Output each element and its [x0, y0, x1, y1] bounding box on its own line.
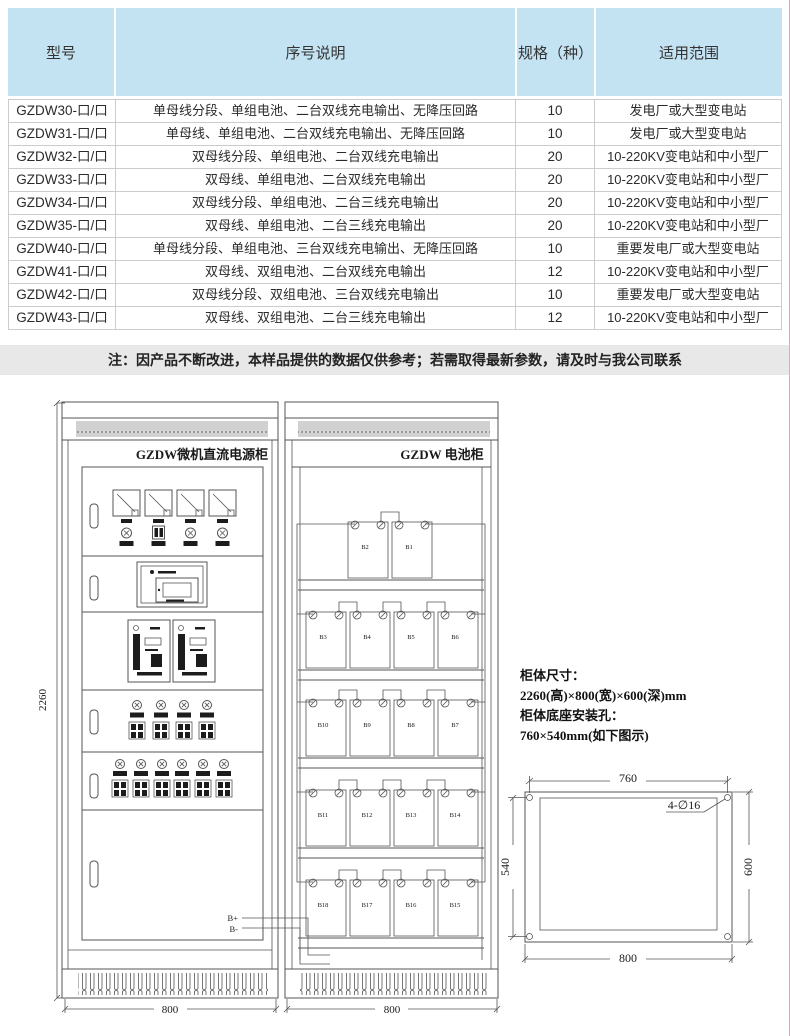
battery: B8	[394, 699, 434, 756]
charger-module	[173, 620, 215, 682]
vent-grille-top	[298, 421, 490, 437]
battery-cabinet-title: GZDW 电池柜	[400, 447, 483, 462]
hole-callout-label: 4-∅16	[668, 798, 700, 812]
battery-label: B10	[318, 722, 329, 729]
battery-bridge	[339, 690, 357, 700]
battery-label: B14	[450, 812, 462, 819]
door-handle	[90, 861, 98, 887]
indicator-light-icon	[122, 528, 132, 538]
battery-cabinet: GZDW 电池柜 B2B1B3B4B5B6B10B9B8B7B11B12B13B…	[285, 402, 498, 998]
table-cell: 20	[516, 146, 594, 168]
battery: B18	[306, 879, 346, 936]
door-handle	[90, 576, 98, 600]
mounting-hole	[527, 934, 533, 940]
battery-bridge	[427, 780, 445, 790]
battery-label: B17	[362, 902, 374, 909]
table-cell: 发电厂或大型变电站	[595, 123, 781, 145]
battery-label: B6	[451, 634, 459, 641]
power-cabinet-title: GZDW微机直流电源柜	[136, 447, 268, 462]
table-cell: 10-220KV变电站和中小型厂	[595, 215, 781, 237]
battery: B5	[394, 611, 434, 668]
battery-label: B11	[318, 812, 329, 819]
breaker-column	[195, 760, 211, 798]
header-spec-count: 规格（种）	[517, 8, 594, 96]
vent-grille-top	[76, 421, 268, 437]
battery: B6	[438, 611, 478, 668]
table-cell: 双母线、单组电池、二台双线充电输出	[116, 169, 515, 191]
wire-label-negative: B-	[230, 924, 239, 934]
battery-label: B13	[406, 812, 417, 819]
battery: B2	[348, 521, 388, 578]
vent-grille-bottom	[78, 973, 268, 995]
indicator-light-icon	[218, 528, 228, 538]
battery-bridge	[339, 780, 357, 790]
battery: B7	[438, 699, 478, 756]
table-cell: 10	[516, 123, 594, 145]
table-cell: 10	[516, 284, 594, 306]
breaker-column	[176, 701, 192, 740]
table-cell: 重要发电厂或大型变电站	[595, 284, 781, 306]
dimension-height: 2260	[37, 400, 65, 1001]
table-cell: GZDW35-口/口	[9, 215, 115, 237]
catalog-page: 型号 序号说明 规格（种） 适用范围 GZDW30-口/口单母线分段、单组电池、…	[0, 0, 790, 1036]
breaker-column	[174, 760, 190, 798]
battery-bridge	[381, 512, 399, 522]
breaker-column	[199, 701, 215, 740]
battery-label: B7	[451, 722, 459, 729]
note-bar: 注：因产品不断改进，本样品提供的数据仅供参考；若需取得最新参数，请及时与我公司联…	[0, 345, 790, 375]
battery-width-label: 800	[384, 1004, 401, 1016]
battery-bridge	[383, 602, 401, 612]
battery-label: B1	[405, 544, 413, 551]
table-cell: 10	[516, 238, 594, 260]
table-cell: 双母线分段、单组电池、二台三线充电输出	[116, 192, 515, 214]
battery-label: B18	[318, 902, 329, 909]
analog-meter	[177, 490, 204, 523]
header-application: 适用范围	[596, 8, 782, 96]
breaker-rows	[112, 701, 232, 798]
table-cell: 双母线分段、单组电池、二台双线充电输出	[116, 146, 515, 168]
analog-meters	[113, 490, 236, 546]
mounting-hole	[725, 795, 731, 801]
vent-grille-bottom	[300, 973, 490, 995]
table-cell: 10-220KV变电站和中小型厂	[595, 146, 781, 168]
table-cell: 双母线、双组电池、二台三线充电输出	[116, 307, 515, 329]
table-cell: 20	[516, 192, 594, 214]
battery-label: B3	[319, 634, 327, 641]
charger-modules	[128, 620, 215, 682]
breaker-column	[129, 701, 145, 740]
wire-label-positive: B+	[228, 913, 239, 923]
battery: B14	[438, 789, 478, 846]
table-cell: GZDW30-口/口	[9, 100, 115, 122]
battery-bridge	[427, 602, 445, 612]
table-cell: 10-220KV变电站和中小型厂	[595, 307, 781, 329]
base-left-dim: 540	[498, 858, 512, 876]
table-cell: 单母线、单组电池、二台双线充电输出、无降压回路	[116, 123, 515, 145]
battery-bridge	[339, 870, 357, 880]
battery-label: B12	[362, 812, 373, 819]
mounting-hole	[725, 934, 731, 940]
spec-table-header: 型号 序号说明 规格（种） 适用范围	[8, 8, 782, 96]
analog-meter	[113, 490, 140, 523]
battery: B4	[350, 611, 390, 668]
table-cell: 双母线、双组电池、二台双线充电输出	[116, 261, 515, 283]
battery-bridge	[339, 602, 357, 612]
table-cell: GZDW33-口/口	[9, 169, 115, 191]
spec-table-body: GZDW30-口/口单母线分段、单组电池、二台双线充电输出、无降压回路10发电厂…	[8, 99, 782, 330]
charger-module	[128, 620, 170, 682]
power-width-label: 800	[162, 1004, 179, 1016]
breaker-column	[153, 701, 169, 740]
table-cell: 20	[516, 215, 594, 237]
door-handles	[90, 504, 98, 887]
table-cell: GZDW31-口/口	[9, 123, 115, 145]
table-cell: 双母线、单组电池、二台三线充电输出	[116, 215, 515, 237]
battery-shelves: B2B1B3B4B5B6B10B9B8B7B11B12B13B14B18B17B…	[298, 512, 484, 948]
battery-label: B16	[406, 902, 418, 909]
table-cell: 单母线分段、单组电池、三台双线充电输出、无降压回路	[116, 238, 515, 260]
table-cell: 单母线分段、单组电池、二台双线充电输出、无降压回路	[116, 100, 515, 122]
lcd-monitor	[137, 562, 207, 607]
cabinet-drawing: GZDW微机直流电源柜	[0, 376, 790, 1036]
header-model: 型号	[8, 8, 114, 96]
dimension-battery-width: 800	[284, 999, 500, 1016]
battery: B3	[306, 611, 346, 668]
table-cell: 10	[516, 100, 594, 122]
battery: B17	[350, 879, 390, 936]
table-cell: GZDW34-口/口	[9, 192, 115, 214]
dimension-power-width: 800	[62, 999, 279, 1016]
battery-label: B15	[450, 902, 461, 909]
table-cell: GZDW41-口/口	[9, 261, 115, 283]
table-cell: 10-220KV变电站和中小型厂	[595, 169, 781, 191]
table-cell: 10-220KV变电站和中小型厂	[595, 192, 781, 214]
door-handle	[90, 710, 98, 734]
table-cell: 重要发电厂或大型变电站	[595, 238, 781, 260]
battery: B16	[394, 879, 434, 936]
base-mounting-diagram: 4-∅16 760 800 540	[498, 771, 755, 965]
battery-label: B8	[407, 722, 415, 729]
meter-selector-icon	[153, 526, 165, 539]
table-cell: 12	[516, 307, 594, 329]
battery: B12	[350, 789, 390, 846]
table-cell: 20	[516, 169, 594, 191]
table-cell: GZDW40-口/口	[9, 238, 115, 260]
breaker-column	[133, 760, 149, 798]
battery: B10	[306, 699, 346, 756]
door-handle	[90, 504, 98, 528]
analog-meter	[145, 490, 172, 523]
battery-bridge	[427, 690, 445, 700]
battery: B11	[306, 789, 346, 846]
battery-bridge	[427, 870, 445, 880]
battery: B13	[394, 789, 434, 846]
base-right-dim: 600	[741, 858, 755, 876]
battery-bridge	[383, 870, 401, 880]
battery: B1	[392, 521, 432, 578]
indicator-light-icon	[186, 528, 196, 538]
table-cell: 10-220KV变电站和中小型厂	[595, 261, 781, 283]
table-cell: 发电厂或大型变电站	[595, 100, 781, 122]
battery: B9	[350, 699, 390, 756]
battery-label: B9	[363, 722, 371, 729]
analog-meter	[209, 490, 236, 523]
battery-label: B2	[361, 544, 369, 551]
table-cell: GZDW42-口/口	[9, 284, 115, 306]
battery-bridge	[383, 780, 401, 790]
mounting-hole	[527, 795, 533, 801]
battery-label: B4	[363, 634, 371, 641]
battery-bridge	[383, 690, 401, 700]
breaker-column	[112, 760, 128, 798]
battery-label: B5	[407, 634, 415, 641]
table-cell: GZDW32-口/口	[9, 146, 115, 168]
battery: B15	[438, 879, 478, 936]
base-bottom-dim: 800	[619, 951, 637, 965]
table-cell: 12	[516, 261, 594, 283]
door-handle	[90, 774, 98, 798]
height-dim-label: 2260	[37, 689, 49, 712]
breaker-column	[154, 760, 170, 798]
table-cell: GZDW43-口/口	[9, 307, 115, 329]
base-top-dim: 760	[619, 771, 637, 785]
power-cabinet: GZDW微机直流电源柜	[62, 402, 278, 998]
breaker-column	[216, 760, 232, 798]
header-description: 序号说明	[116, 8, 515, 96]
table-cell: 双母线分段、双组电池、三台双线充电输出	[116, 284, 515, 306]
